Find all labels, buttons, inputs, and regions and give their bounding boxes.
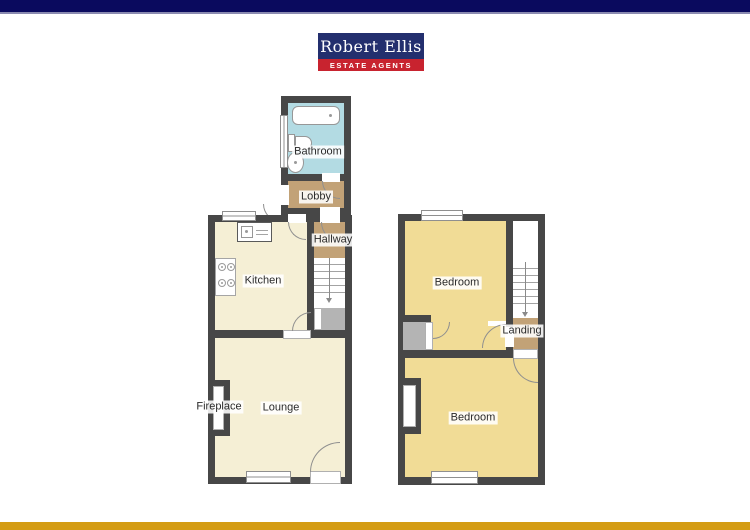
lounge-window [246, 471, 291, 483]
bedroom-back-label: Bedroom [449, 412, 498, 425]
bathroom-label: Bathroom [292, 146, 344, 159]
bathroom-window [280, 115, 288, 168]
hob-ring-icon [227, 263, 235, 271]
cupboard-door [425, 322, 433, 350]
bedroom-front-window [421, 210, 463, 221]
sink-drain-icon [294, 161, 297, 164]
back-doorway [280, 185, 289, 205]
agency-logo: Robert Ellis ESTATE AGENTS [318, 33, 424, 71]
stairs-direction-line [525, 262, 526, 312]
kitchen-window [222, 211, 256, 221]
logo-tagline: ESTATE AGENTS [330, 61, 412, 70]
bedroom-back-window [431, 471, 478, 484]
kitchen-sink-drain-icon [245, 230, 248, 233]
bedroom-back-recess [403, 385, 416, 427]
kitchen-drainer-icon [256, 227, 268, 238]
bathtub-icon [292, 106, 340, 125]
bathtub-drain-icon [329, 114, 332, 117]
hob-ring-icon [227, 279, 235, 287]
hob-ring-icon [218, 263, 226, 271]
kitchen-label: Kitchen [243, 275, 284, 288]
floorplan-page: Robert Ellis ESTATE AGENTS [0, 0, 750, 530]
logo-name-panel: Robert Ellis [318, 33, 424, 59]
bedroom-cupboard [403, 322, 425, 350]
hallway-label: Hallway [312, 234, 355, 247]
fireplace-label: Fireplace [194, 401, 243, 414]
bottom-brand-bar [0, 522, 750, 530]
lobby-label: Lobby [299, 191, 333, 204]
understairs-cupboard [321, 308, 345, 330]
logo-name: Robert Ellis [320, 37, 422, 56]
stairs-direction-line [329, 258, 330, 298]
landing-label: Landing [500, 325, 543, 338]
hallway-doorway [320, 207, 340, 223]
lounge-label: Lounge [261, 402, 302, 415]
front-doorway [310, 471, 341, 484]
lounge-doorway [283, 330, 311, 339]
bedroom-front-label: Bedroom [433, 277, 482, 290]
stairs-down-arrow-icon [326, 298, 332, 303]
logo-tagline-panel: ESTATE AGENTS [318, 59, 424, 71]
cupboard-wall-stub [398, 315, 431, 322]
top-brand-bar [0, 0, 750, 14]
hob-ring-icon [218, 279, 226, 287]
stairs-down-arrow-icon [522, 312, 528, 317]
